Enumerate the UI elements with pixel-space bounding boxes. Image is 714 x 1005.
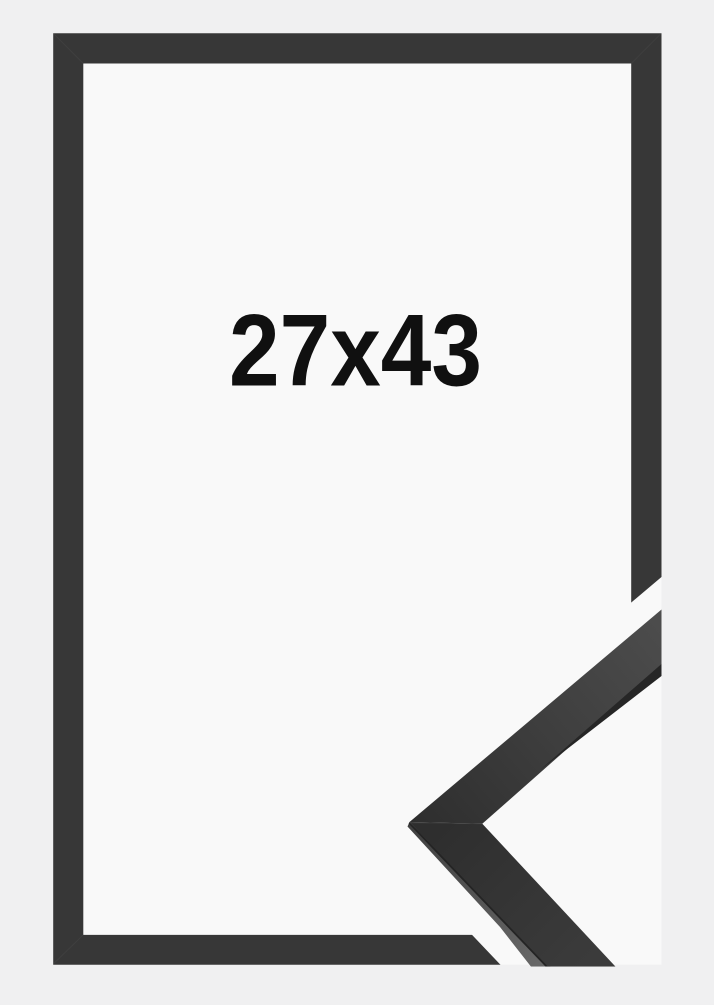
svg-text:27x43: 27x43 bbox=[229, 292, 482, 407]
